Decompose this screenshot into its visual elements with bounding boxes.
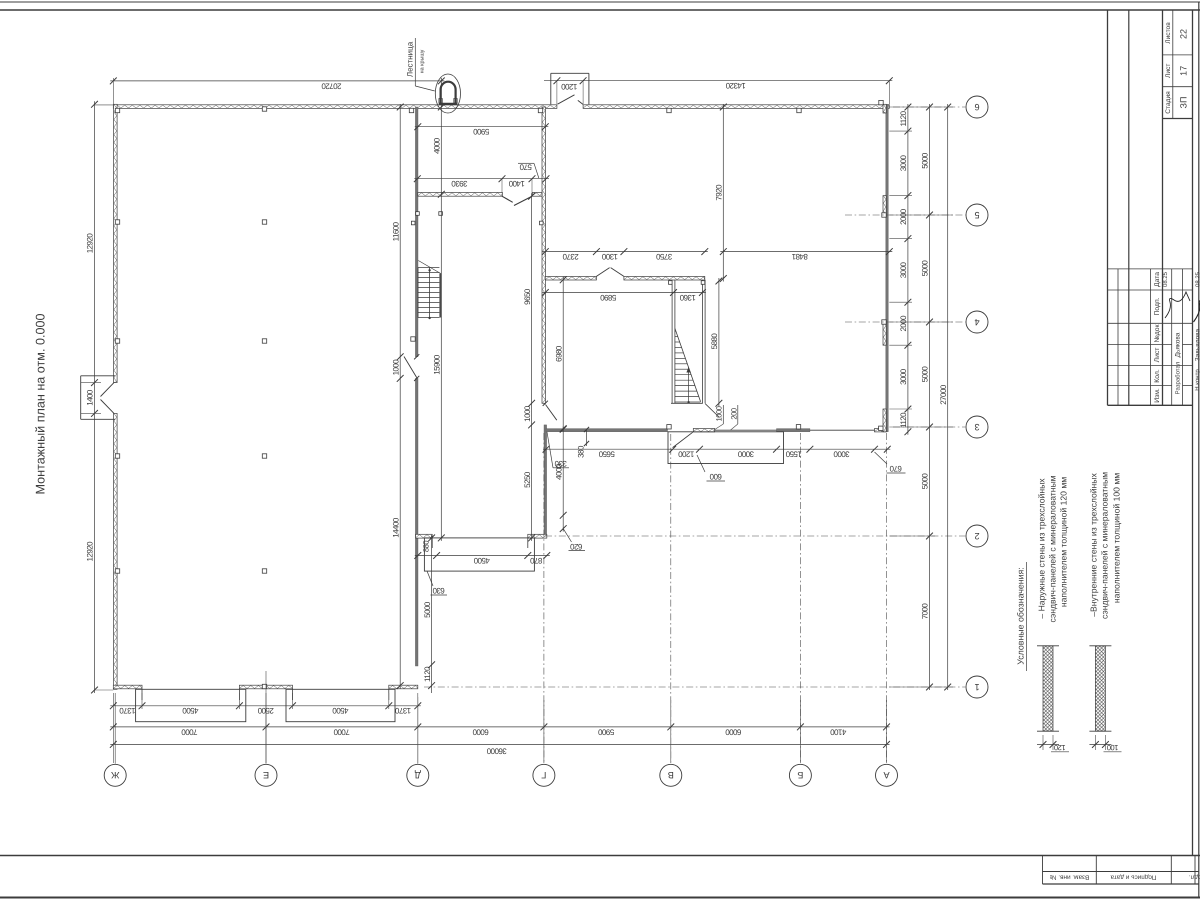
svg-text:1: 1 bbox=[974, 682, 979, 692]
svg-text:5880: 5880 bbox=[710, 333, 719, 350]
svg-text:5: 5 bbox=[974, 210, 979, 220]
svg-text:4500: 4500 bbox=[182, 706, 199, 715]
svg-text:1360: 1360 bbox=[679, 293, 696, 302]
svg-text:27000: 27000 bbox=[939, 384, 948, 405]
svg-text:15900: 15900 bbox=[433, 354, 442, 375]
svg-text:Лестница: Лестница bbox=[405, 41, 414, 77]
svg-text:Н.контр: Н.контр bbox=[1194, 369, 1200, 391]
svg-text:08.25: 08.25 bbox=[1162, 271, 1169, 287]
svg-text:1300: 1300 bbox=[601, 252, 618, 261]
svg-text:8481: 8481 bbox=[791, 252, 808, 261]
svg-text:6980: 6980 bbox=[554, 345, 563, 362]
svg-text:4000: 4000 bbox=[433, 137, 442, 154]
svg-text:1000: 1000 bbox=[523, 405, 532, 422]
svg-text:2370: 2370 bbox=[562, 252, 579, 261]
svg-text:14400: 14400 bbox=[391, 517, 400, 538]
svg-text:4500: 4500 bbox=[332, 706, 349, 715]
svg-text:Завьялова: Завьялова bbox=[1194, 328, 1200, 361]
svg-text:200: 200 bbox=[730, 408, 739, 419]
svg-text:1550: 1550 bbox=[785, 450, 802, 459]
svg-text:100: 100 bbox=[1107, 743, 1118, 752]
svg-text:3000: 3000 bbox=[899, 262, 908, 279]
svg-text:5000: 5000 bbox=[921, 473, 930, 490]
svg-text:Лист: Лист bbox=[1154, 348, 1161, 363]
svg-text:3000: 3000 bbox=[899, 155, 908, 172]
svg-text:1120: 1120 bbox=[899, 110, 908, 126]
svg-text:Взам. инв. №: Взам. инв. № bbox=[1050, 874, 1090, 881]
svg-text:5000: 5000 bbox=[921, 366, 930, 383]
svg-text:120: 120 bbox=[1054, 743, 1065, 752]
svg-text:22: 22 bbox=[1179, 29, 1189, 39]
svg-text:880: 880 bbox=[422, 541, 431, 552]
svg-text:5000: 5000 bbox=[423, 601, 432, 618]
svg-text:Подл.: Подл. bbox=[1189, 874, 1200, 881]
svg-text:1120: 1120 bbox=[899, 412, 908, 428]
svg-text:12920: 12920 bbox=[86, 233, 95, 254]
svg-text:3750: 3750 bbox=[656, 252, 673, 261]
svg-text:Кол.: Кол. bbox=[1154, 369, 1161, 383]
svg-text:на крышу: на крышу bbox=[419, 49, 425, 73]
svg-text:5890: 5890 bbox=[600, 293, 617, 302]
svg-text:А: А bbox=[883, 770, 890, 780]
svg-text:5900: 5900 bbox=[598, 727, 615, 736]
svg-text:3000: 3000 bbox=[833, 450, 850, 459]
svg-text:Подп.: Подп. bbox=[1154, 297, 1161, 315]
svg-text:Г: Г bbox=[541, 770, 546, 780]
svg-text:3930: 3930 bbox=[451, 179, 468, 188]
svg-text:570: 570 bbox=[519, 163, 532, 172]
svg-text:Д: Д bbox=[414, 770, 421, 780]
svg-text:7000: 7000 bbox=[181, 727, 198, 736]
svg-text:5000: 5000 bbox=[921, 152, 930, 169]
svg-text:7000: 7000 bbox=[333, 727, 350, 736]
svg-text:1200: 1200 bbox=[678, 450, 695, 459]
svg-text:3000: 3000 bbox=[737, 450, 754, 459]
svg-text:330: 330 bbox=[554, 459, 567, 468]
svg-text:630: 630 bbox=[432, 586, 445, 595]
svg-text:36000: 36000 bbox=[486, 746, 507, 755]
svg-text:1400: 1400 bbox=[508, 179, 525, 188]
svg-text:670: 670 bbox=[889, 464, 902, 473]
svg-text:1370: 1370 bbox=[394, 706, 411, 715]
svg-text:2000: 2000 bbox=[899, 315, 908, 332]
svg-text:12920: 12920 bbox=[86, 541, 95, 562]
svg-text:3: 3 bbox=[974, 422, 979, 432]
svg-text:– Наружные стены из трехслойны: – Наружные стены из трехслойных bbox=[1037, 478, 1047, 619]
svg-text:сэндвич-панелей с минераловатн: сэндвич-панелей с минераловатным bbox=[1100, 472, 1110, 619]
svg-text:5000: 5000 bbox=[921, 260, 930, 277]
svg-text:6: 6 bbox=[974, 102, 979, 112]
svg-text:600: 600 bbox=[709, 472, 722, 481]
svg-text:5900: 5900 bbox=[473, 127, 490, 136]
svg-text:1200: 1200 bbox=[561, 82, 578, 91]
svg-text:ЗП: ЗП bbox=[1179, 97, 1189, 109]
svg-text:наполнителем толщиной 120 мм: наполнителем толщиной 120 мм bbox=[1059, 477, 1069, 607]
svg-text:Подпись и дата: Подпись и дата bbox=[1110, 874, 1156, 881]
svg-text:Изм.: Изм. bbox=[1154, 388, 1161, 403]
svg-text:2500: 2500 bbox=[257, 706, 274, 715]
svg-text:наполнителем толщиной 100 мм: наполнителем толщиной 100 мм bbox=[1112, 473, 1122, 603]
svg-text:20720: 20720 bbox=[321, 81, 342, 90]
svg-text:17: 17 bbox=[1179, 66, 1189, 76]
svg-text:7000: 7000 bbox=[921, 603, 930, 620]
svg-text:1120: 1120 bbox=[423, 666, 432, 682]
svg-text:5250: 5250 bbox=[523, 471, 532, 488]
svg-text:Стадия: Стадия bbox=[1165, 91, 1172, 114]
svg-text:Дьякова: Дьякова bbox=[1175, 332, 1182, 357]
svg-text:3000: 3000 bbox=[899, 368, 908, 385]
svg-text:380: 380 bbox=[576, 445, 585, 458]
svg-text:Условные обозначения:: Условные обозначения: bbox=[1016, 567, 1026, 664]
svg-text:1000: 1000 bbox=[391, 359, 400, 376]
svg-text:сэндвич-панелей с минераловатн: сэндвич-панелей с минераловатным bbox=[1048, 475, 1058, 622]
svg-text:870: 870 bbox=[530, 556, 543, 565]
svg-text:9650: 9650 bbox=[523, 288, 532, 305]
svg-text:6000: 6000 bbox=[472, 727, 489, 736]
svg-text:620: 620 bbox=[570, 542, 583, 551]
svg-text:4100: 4100 bbox=[830, 727, 847, 736]
svg-text:Дата: Дата bbox=[1154, 272, 1161, 287]
svg-text:Монтажный план на отм. 0.000: Монтажный план на отм. 0.000 bbox=[33, 314, 47, 495]
svg-text:–Внутренние стены из трехслойн: –Внутренние стены из трехслойных bbox=[1089, 473, 1099, 617]
svg-text:Листов: Листов bbox=[1165, 22, 1172, 44]
svg-text:5650: 5650 bbox=[598, 450, 615, 459]
svg-text:14320: 14320 bbox=[725, 81, 746, 90]
svg-text:Ж: Ж bbox=[110, 770, 119, 780]
svg-text:7920: 7920 bbox=[715, 184, 724, 201]
svg-text:6000: 6000 bbox=[725, 727, 742, 736]
svg-text:В: В bbox=[668, 770, 674, 780]
svg-text:2000: 2000 bbox=[899, 208, 908, 225]
svg-text:1370: 1370 bbox=[119, 706, 136, 715]
svg-text:4500: 4500 bbox=[473, 556, 490, 565]
svg-text:11600: 11600 bbox=[391, 221, 400, 241]
svg-text:Разработал: Разработал bbox=[1174, 361, 1181, 394]
svg-text:№док: №док bbox=[1154, 324, 1161, 342]
svg-text:08.25: 08.25 bbox=[1194, 271, 1200, 287]
svg-text:Лист: Лист bbox=[1165, 64, 1172, 78]
svg-text:Б: Б bbox=[797, 770, 803, 780]
svg-text:Е: Е bbox=[263, 770, 269, 780]
svg-text:2: 2 bbox=[974, 531, 979, 541]
svg-text:1400: 1400 bbox=[86, 389, 95, 406]
svg-text:4: 4 bbox=[974, 317, 979, 327]
